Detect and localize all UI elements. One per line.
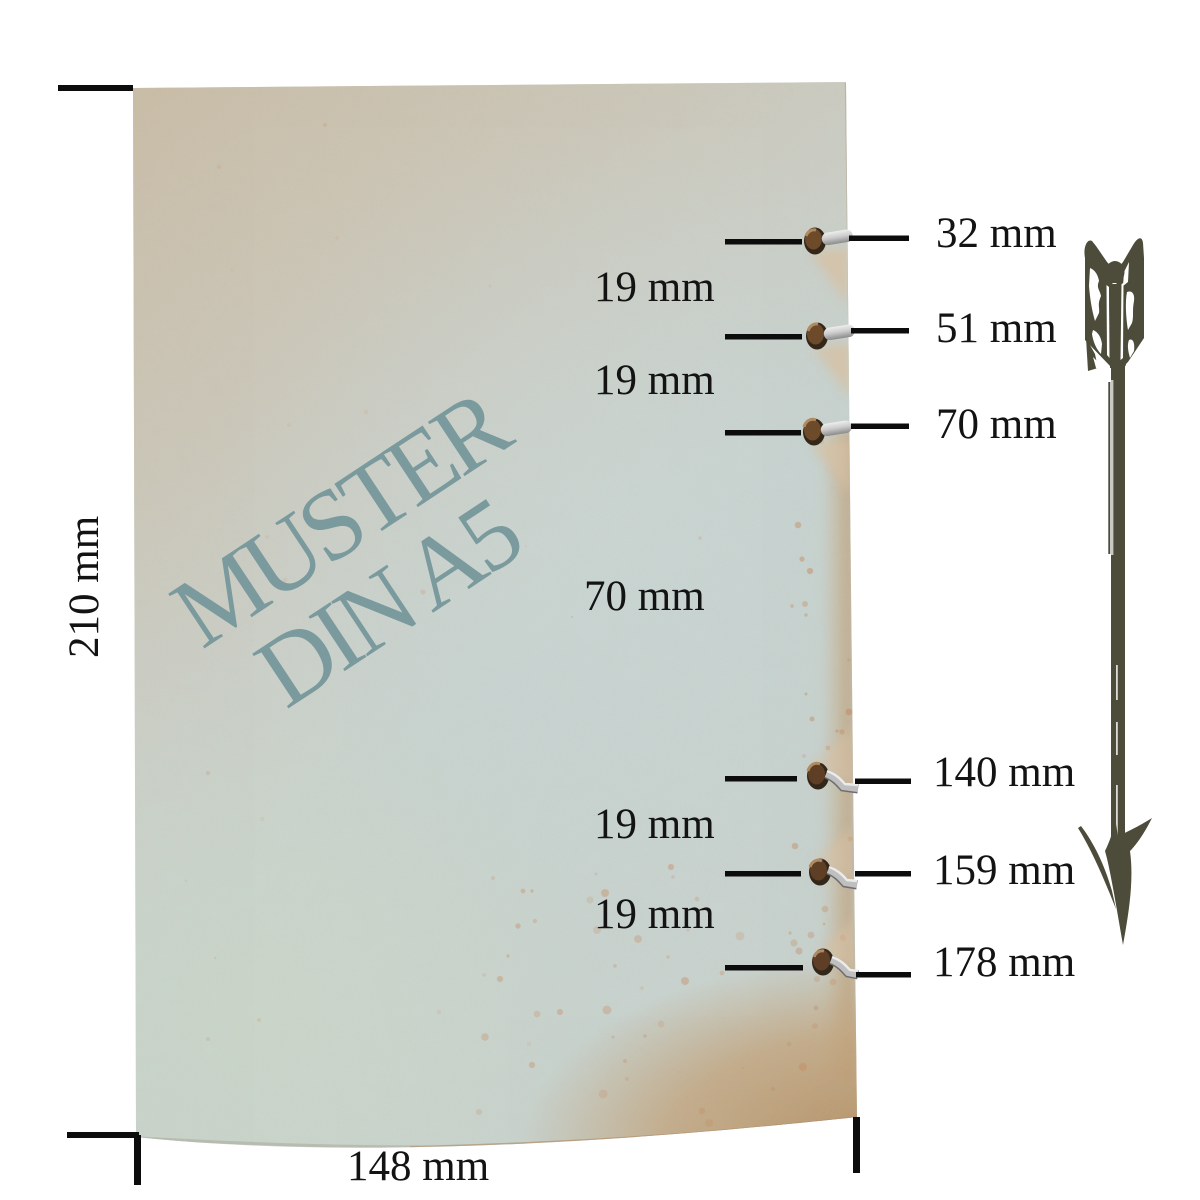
svg-text:19 mm: 19 mm — [594, 264, 715, 311]
svg-text:19 mm: 19 mm — [594, 891, 715, 938]
svg-text:210 mm: 210 mm — [61, 516, 108, 658]
svg-text:159 mm: 159 mm — [933, 847, 1075, 894]
svg-text:70 mm: 70 mm — [584, 573, 705, 620]
svg-text:32 mm: 32 mm — [936, 210, 1057, 257]
svg-text:148 mm: 148 mm — [347, 1143, 489, 1190]
svg-text:19 mm: 19 mm — [594, 801, 715, 848]
svg-text:140 mm: 140 mm — [933, 749, 1075, 796]
svg-text:70 mm: 70 mm — [936, 401, 1057, 448]
svg-text:51 mm: 51 mm — [936, 305, 1057, 352]
svg-text:178 mm: 178 mm — [933, 939, 1075, 986]
svg-text:19 mm: 19 mm — [594, 357, 715, 404]
